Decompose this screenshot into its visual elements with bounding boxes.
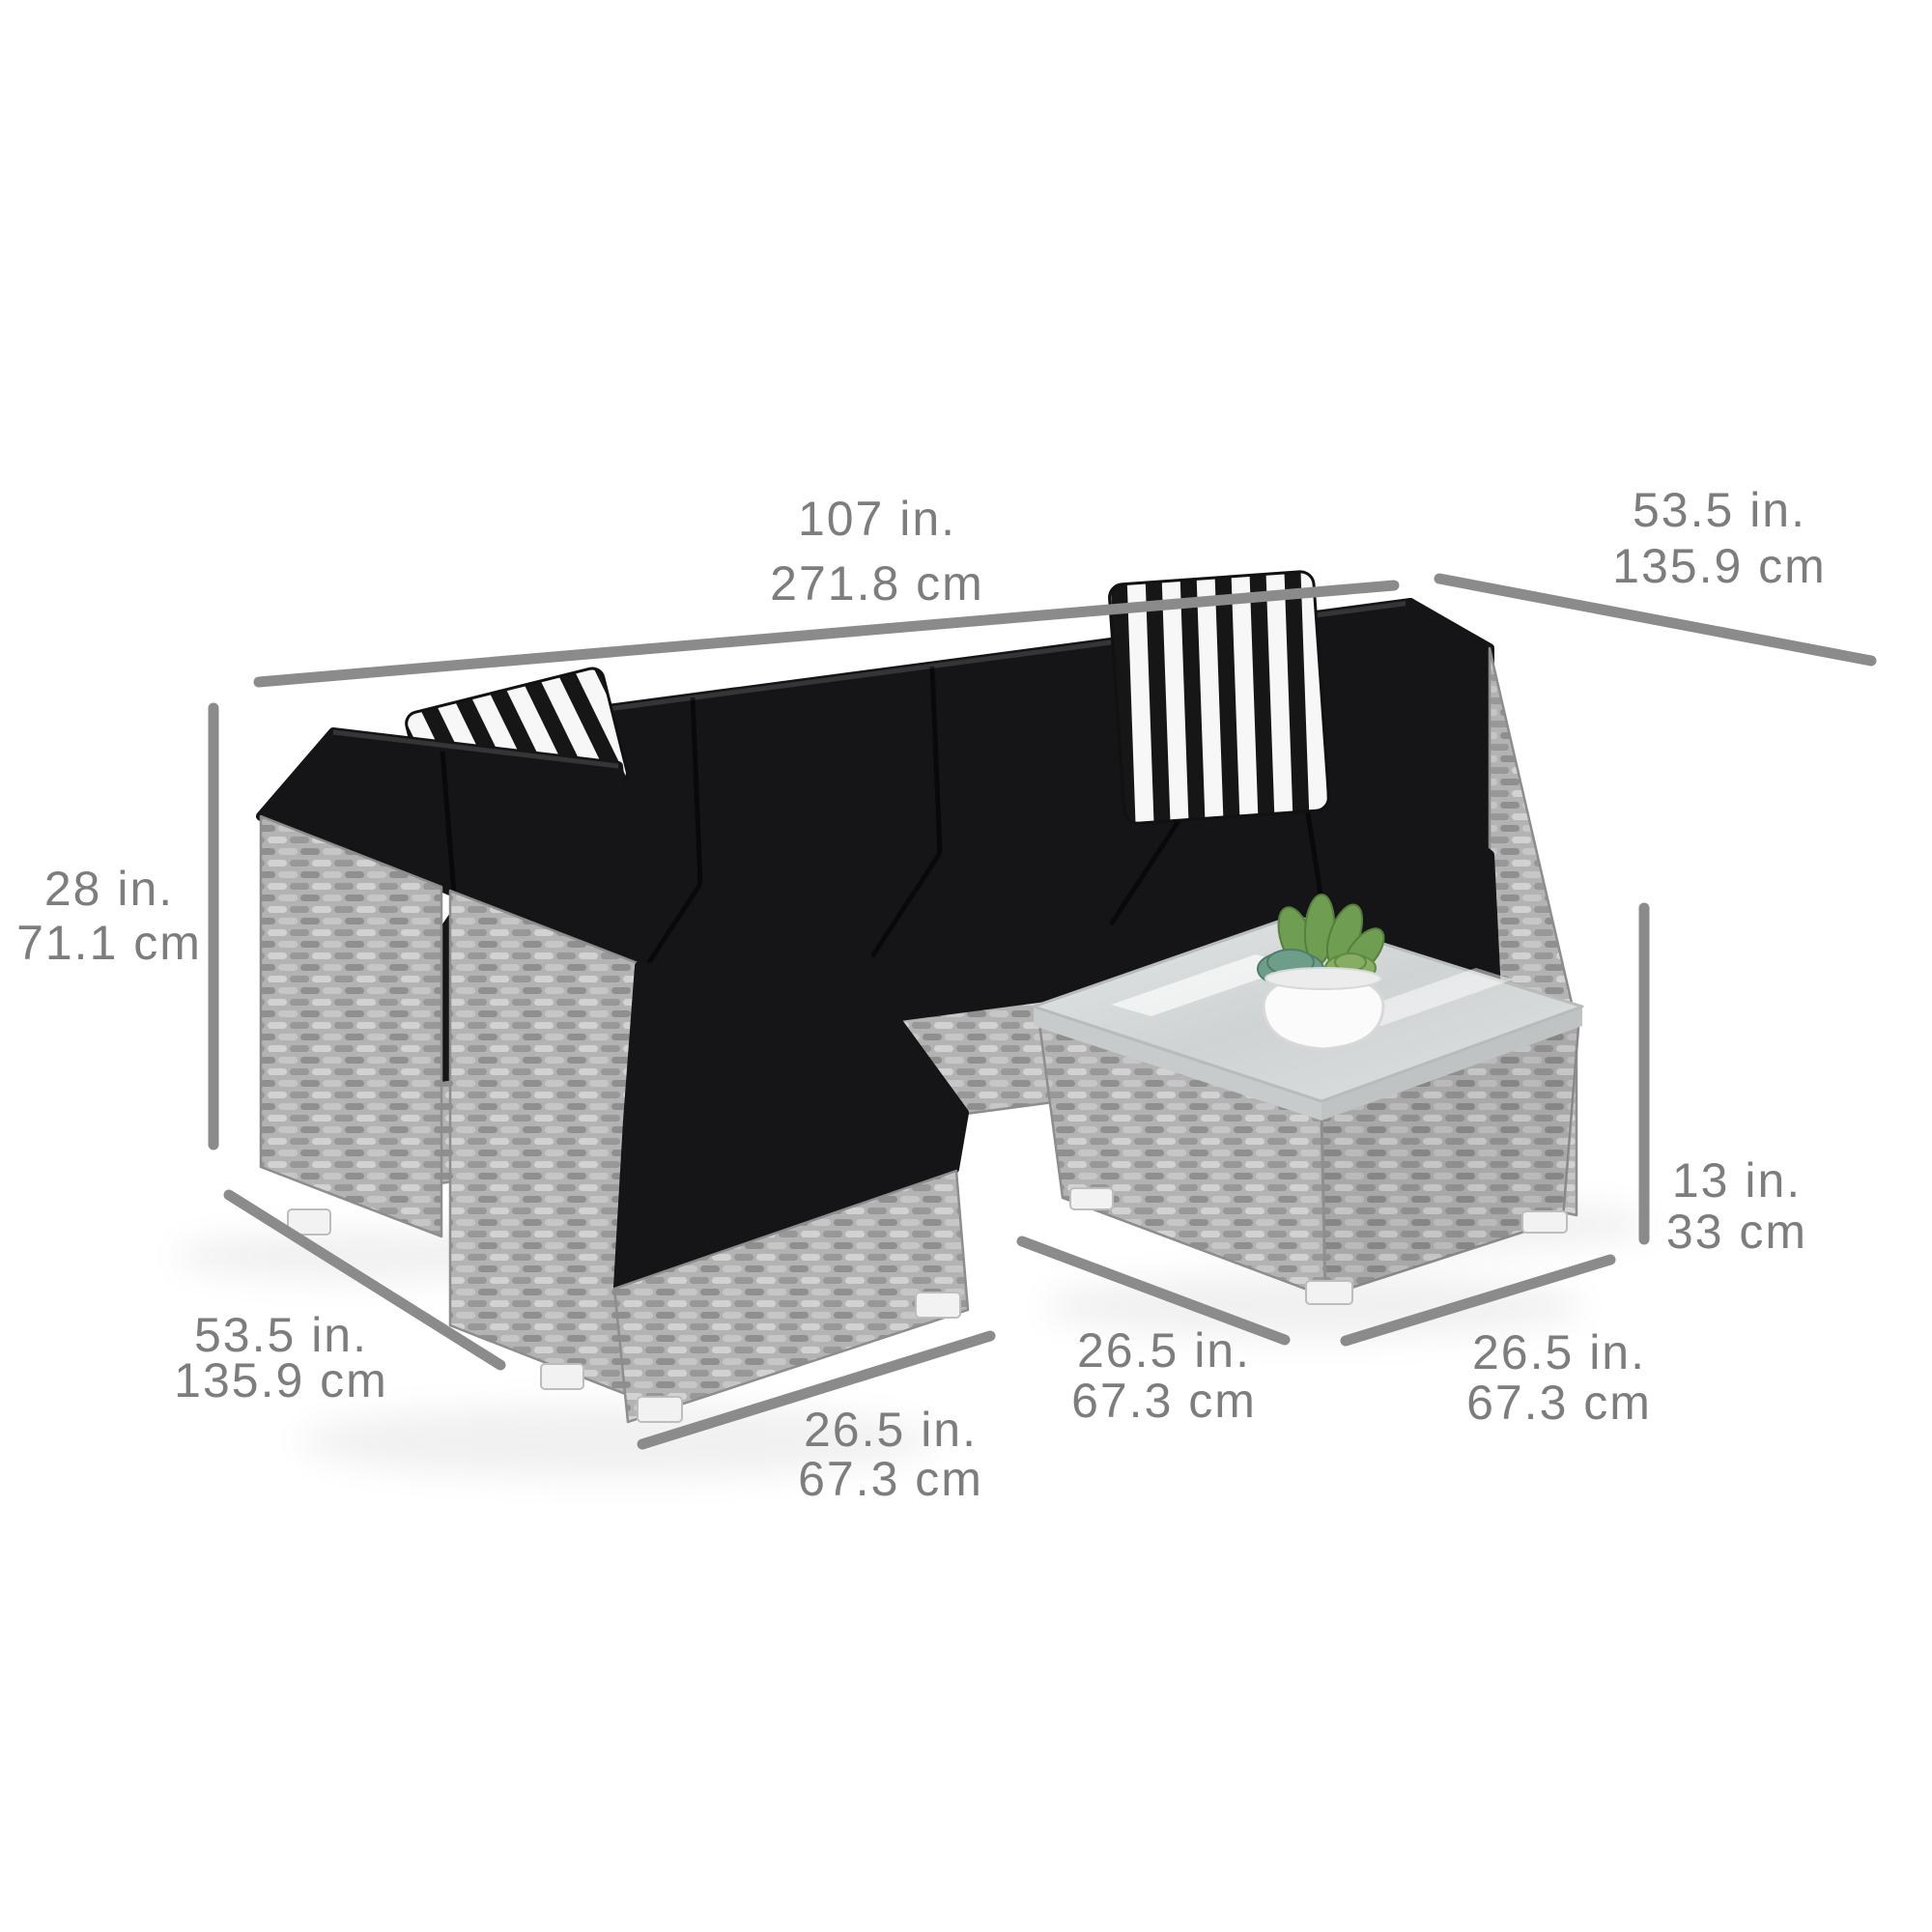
label-table-height-cm: 33 cm [1666, 1205, 1807, 1259]
planter-opening [1265, 968, 1381, 989]
label-table-left-cm: 67.3 cm [1071, 1374, 1257, 1428]
table-foot [1306, 1281, 1352, 1304]
label-table-right-cm: 67.3 cm [1466, 1376, 1652, 1430]
label-depth-right-cm: 135.9 cm [1612, 539, 1827, 593]
table-foot [1522, 1211, 1567, 1233]
left-wing-foot [541, 1364, 583, 1389]
label-height-in: 28 in. [44, 862, 174, 916]
label-depth-right-in: 53.5 in. [1633, 483, 1806, 537]
label-table-left-in: 26.5 in. [1077, 1323, 1251, 1378]
label-seat-width-in: 26.5 in. [804, 1403, 978, 1457]
scene-svg: 107 in. 271.8 cm 53.5 in. 135.9 cm 28 in… [0, 0, 1932, 1932]
label-table-height-in: 13 in. [1672, 1153, 1802, 1207]
left-wing-foot [916, 1293, 960, 1318]
left-wing-back-panel-1 [261, 816, 441, 1236]
left-wing-back-panel-2 [450, 891, 638, 1399]
label-sofa-width-in: 107 in. [798, 492, 956, 546]
label-depth-left-cm: 135.9 cm [174, 1353, 388, 1407]
product-dimension-diagram: 107 in. 271.8 cm 53.5 in. 135.9 cm 28 in… [0, 0, 1932, 1932]
left-wing-foot [638, 1397, 682, 1422]
table-foot [1070, 1188, 1113, 1209]
label-height-cm: 71.1 cm [16, 916, 202, 970]
label-sofa-width-cm: 271.8 cm [770, 556, 984, 611]
label-table-right-in: 26.5 in. [1472, 1325, 1646, 1379]
label-seat-width-cm: 67.3 cm [798, 1452, 983, 1506]
